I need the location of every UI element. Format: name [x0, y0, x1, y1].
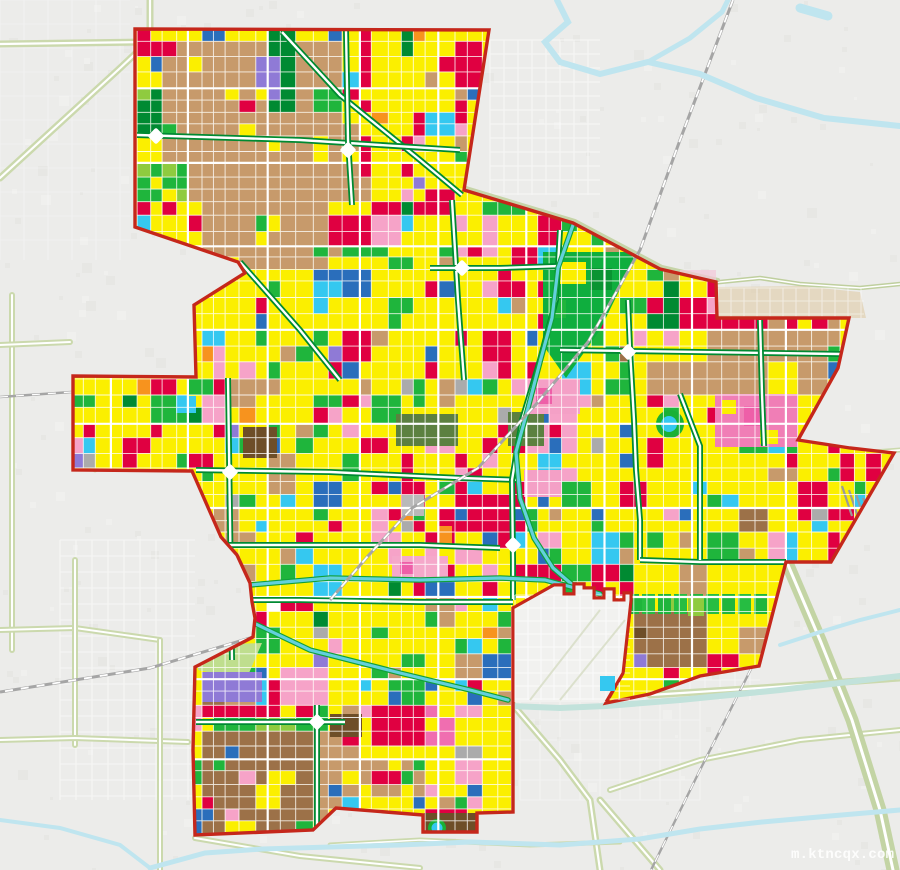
svg-text:m.ktncqx.com: m.ktncqx.com	[791, 847, 894, 863]
